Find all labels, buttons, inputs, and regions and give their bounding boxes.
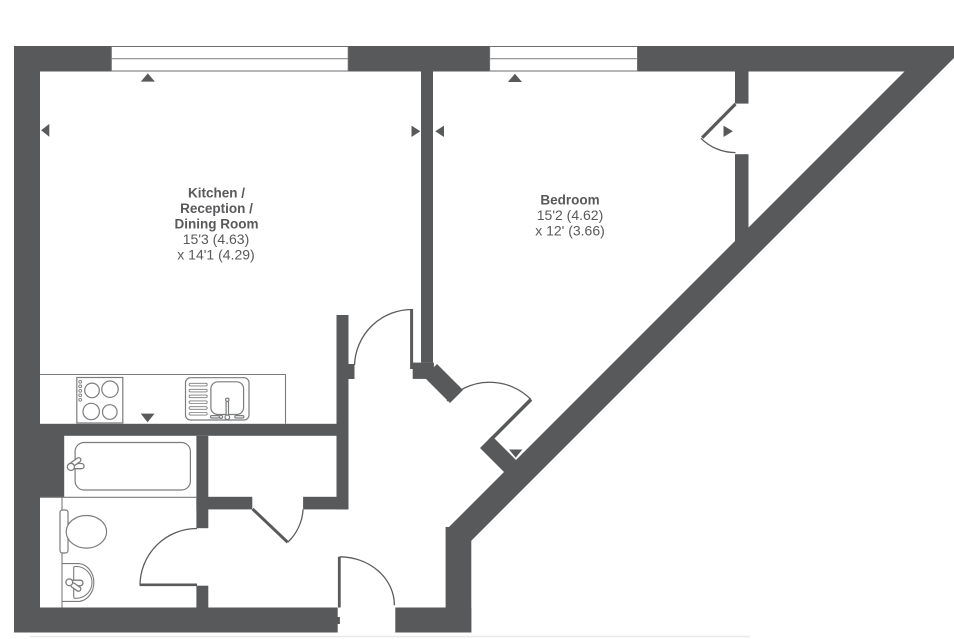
svg-text:Bedroom: Bedroom: [540, 193, 599, 208]
svg-text:15'2 (4.62): 15'2 (4.62): [537, 207, 604, 223]
svg-text:Dining Room: Dining Room: [175, 217, 259, 232]
svg-text:x 12' (3.66): x 12' (3.66): [535, 223, 605, 239]
svg-text:Reception /: Reception /: [180, 201, 253, 216]
svg-text:Kitchen /: Kitchen /: [188, 185, 245, 200]
svg-text:15'3 (4.63): 15'3 (4.63): [183, 231, 250, 247]
svg-text:x 14'1 (4.29): x 14'1 (4.29): [177, 247, 254, 263]
